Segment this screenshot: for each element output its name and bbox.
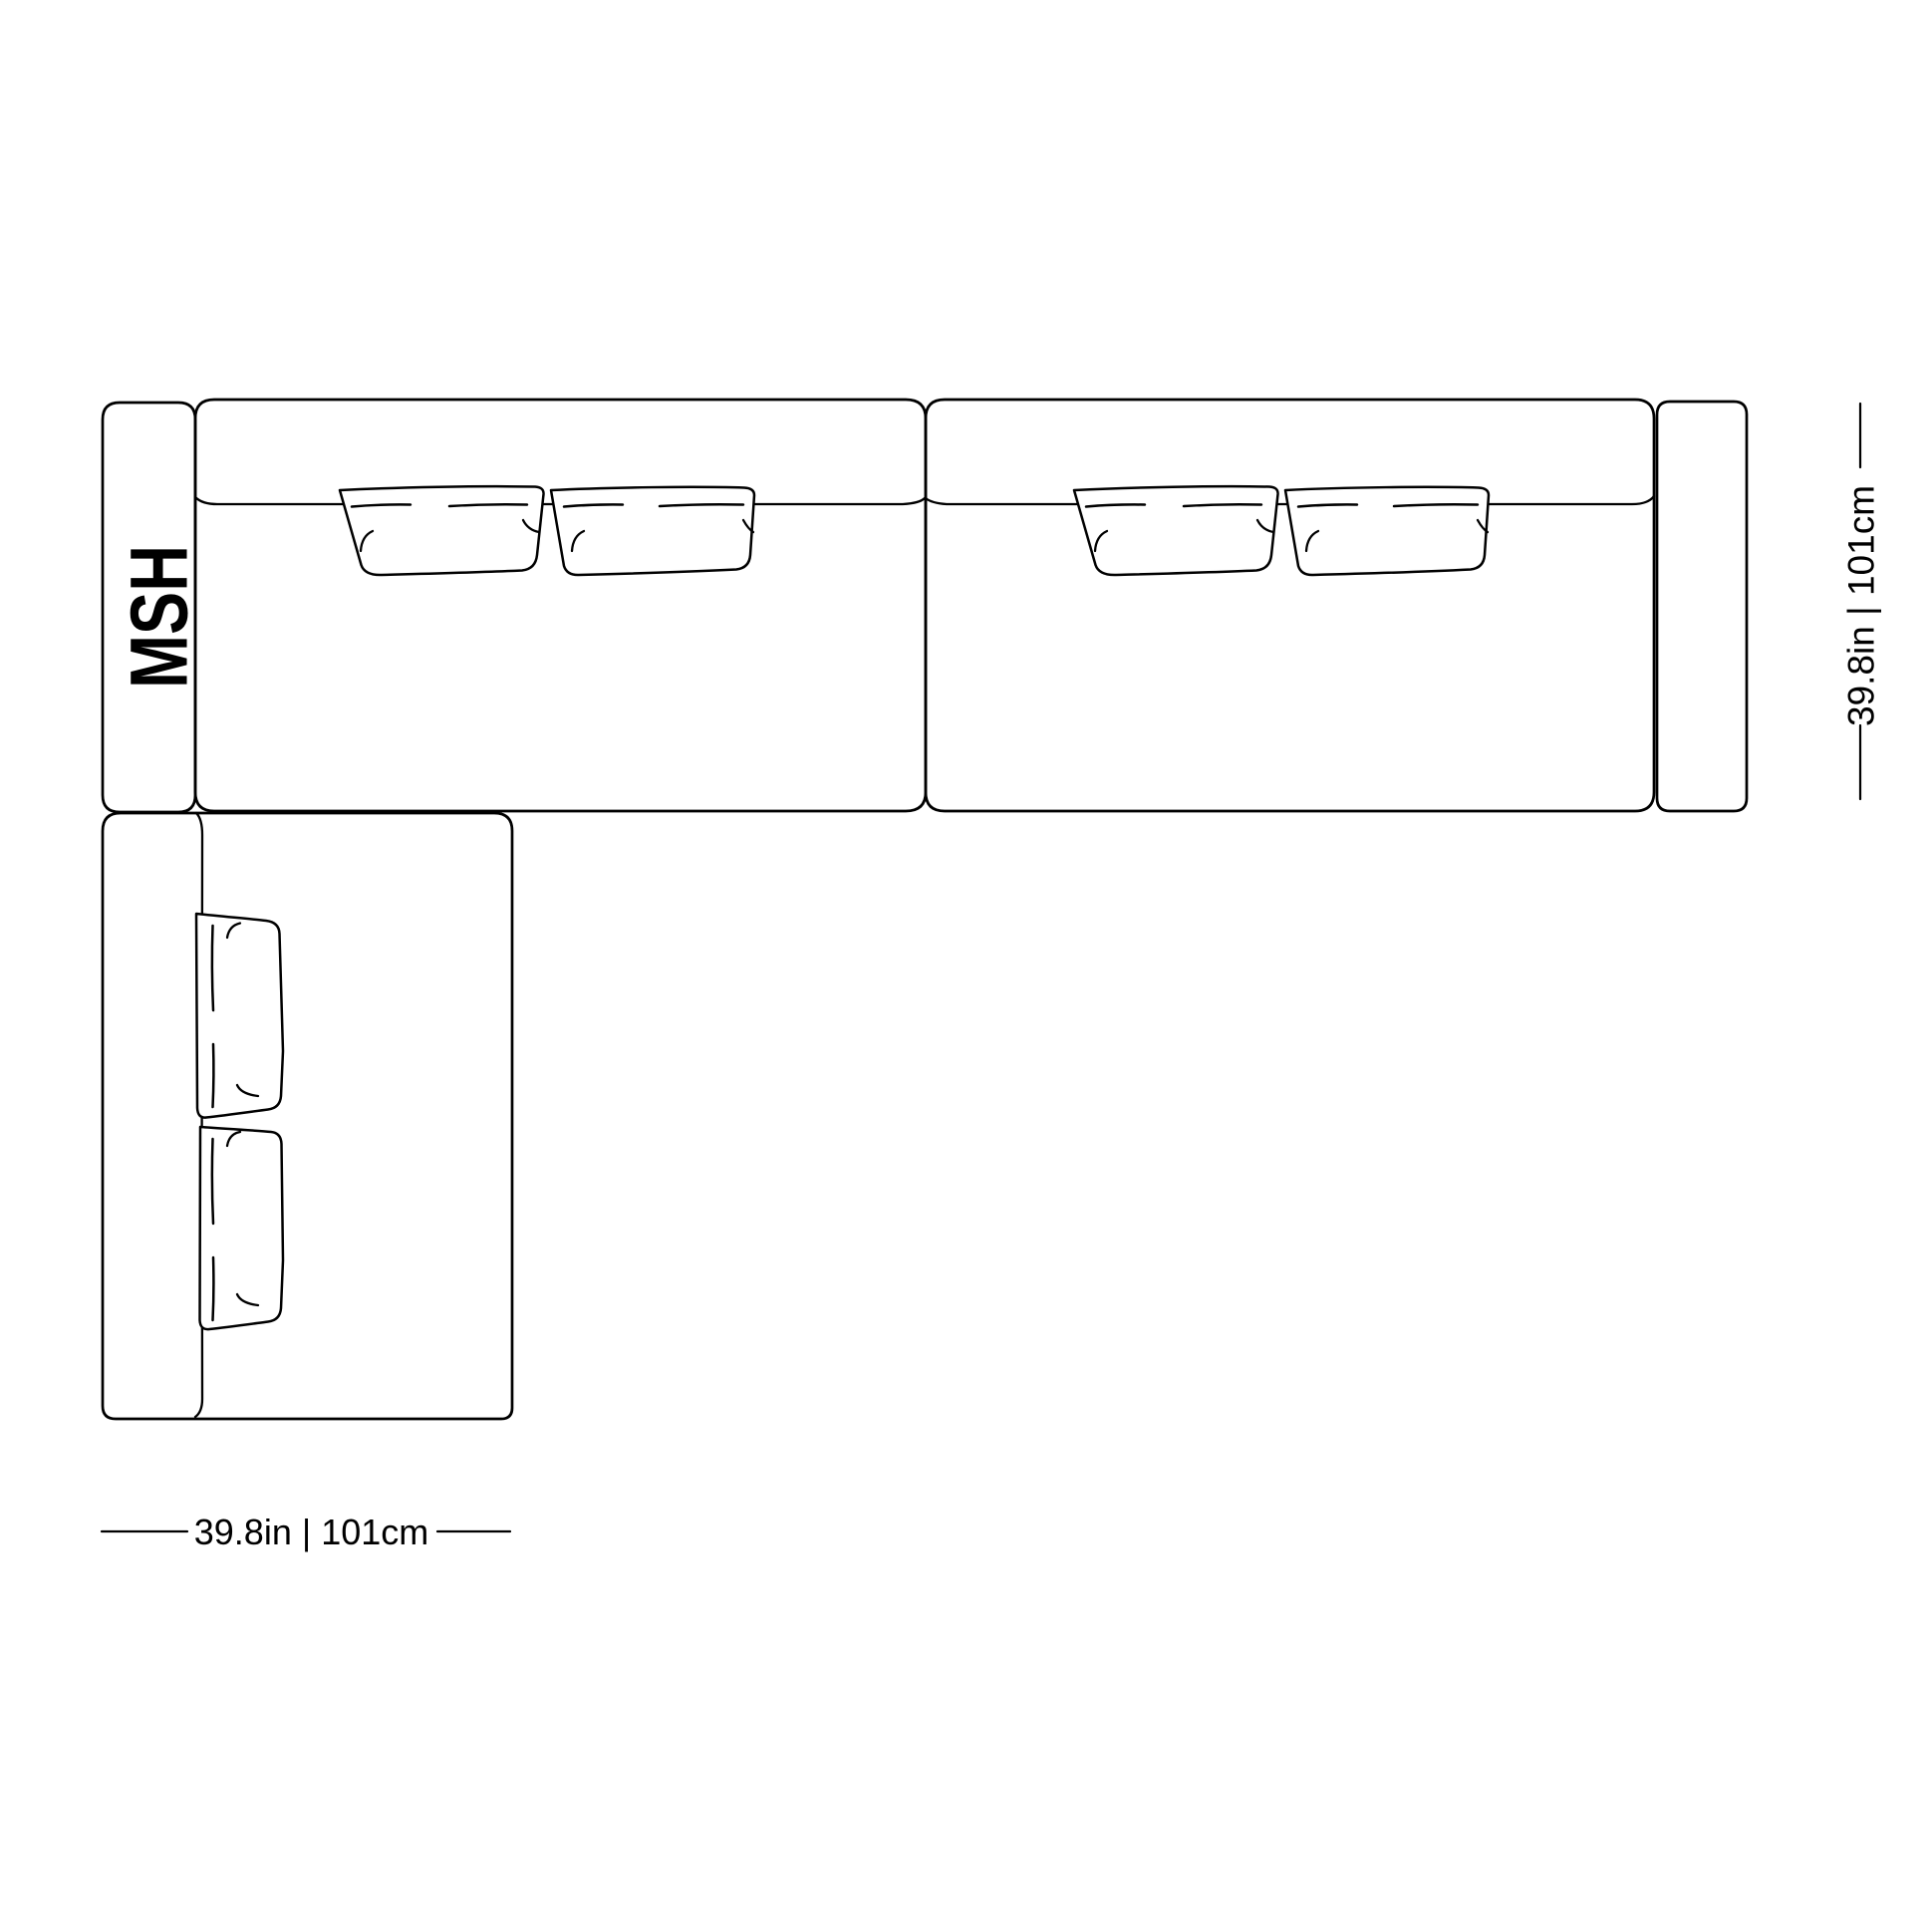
svg-text:MSH: MSH bbox=[113, 545, 204, 689]
svg-text:39.8in | 101cm: 39.8in | 101cm bbox=[1841, 485, 1882, 726]
svg-text:39.8in | 101cm: 39.8in | 101cm bbox=[194, 1512, 429, 1552]
